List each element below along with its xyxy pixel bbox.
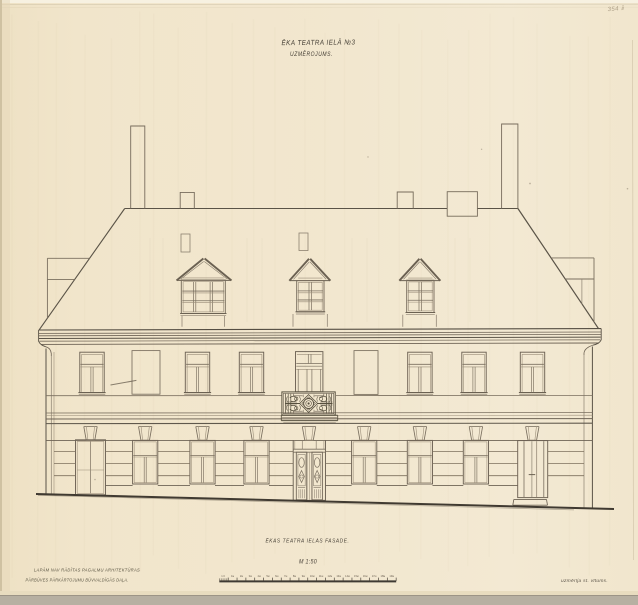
svg-text:6м: 6м — [275, 574, 278, 578]
svg-text:ĒKA TEATRA IELĀ №3: ĒKA TEATRA IELĀ №3 — [281, 37, 355, 47]
svg-text:4м: 4м — [258, 574, 261, 578]
svg-text:18м: 18м — [381, 574, 386, 578]
svg-text:354 ⅱ: 354 ⅱ — [607, 5, 625, 13]
svg-text:11м: 11м — [319, 574, 324, 578]
svg-text:5м: 5м — [266, 574, 269, 578]
svg-text:12м: 12м — [328, 574, 333, 578]
svg-text:17м: 17м — [372, 574, 377, 578]
svg-text:14м: 14м — [345, 574, 350, 578]
svg-text:UZMĒROJUMS.: UZMĒROJUMS. — [290, 50, 333, 58]
svg-text:7м: 7м — [284, 574, 287, 578]
svg-text:16м: 16м — [363, 574, 368, 578]
svg-text:ĒKAS TEATRA IELAS FASADE.: ĒKAS TEATRA IELAS FASADE. — [266, 537, 350, 544]
svg-text:uzmērīja st. vītums.: uzmērīja st. vītums. — [561, 578, 608, 583]
svg-text:10м: 10м — [310, 574, 315, 578]
svg-text:8м: 8м — [293, 574, 296, 578]
svg-text:2м: 2м — [240, 574, 243, 578]
svg-text:3м: 3м — [249, 574, 252, 578]
svg-text:PĀRBŪVES PĀRKĀRTOJUMU BŪVVALDĪ: PĀRBŪVES PĀRKĀRTOJUMU BŪVVALDĪGĀS DAĻA. — [26, 577, 129, 582]
svg-text:15м: 15м — [354, 574, 359, 578]
svg-text:9м: 9м — [302, 574, 305, 578]
svg-text:M 1:50: M 1:50 — [299, 559, 317, 565]
svg-text:13м: 13м — [336, 574, 341, 578]
svg-text:LAPĀM NAV RĀDĪTAS PAGALMU ARHI: LAPĀM NAV RĀDĪTAS PAGALMU ARHITEKTŪRAS — [34, 568, 140, 573]
svg-text:1 0: 1 0 — [221, 574, 225, 578]
svg-text:1м: 1м — [231, 574, 234, 578]
svg-text:19м: 19м — [389, 574, 394, 578]
